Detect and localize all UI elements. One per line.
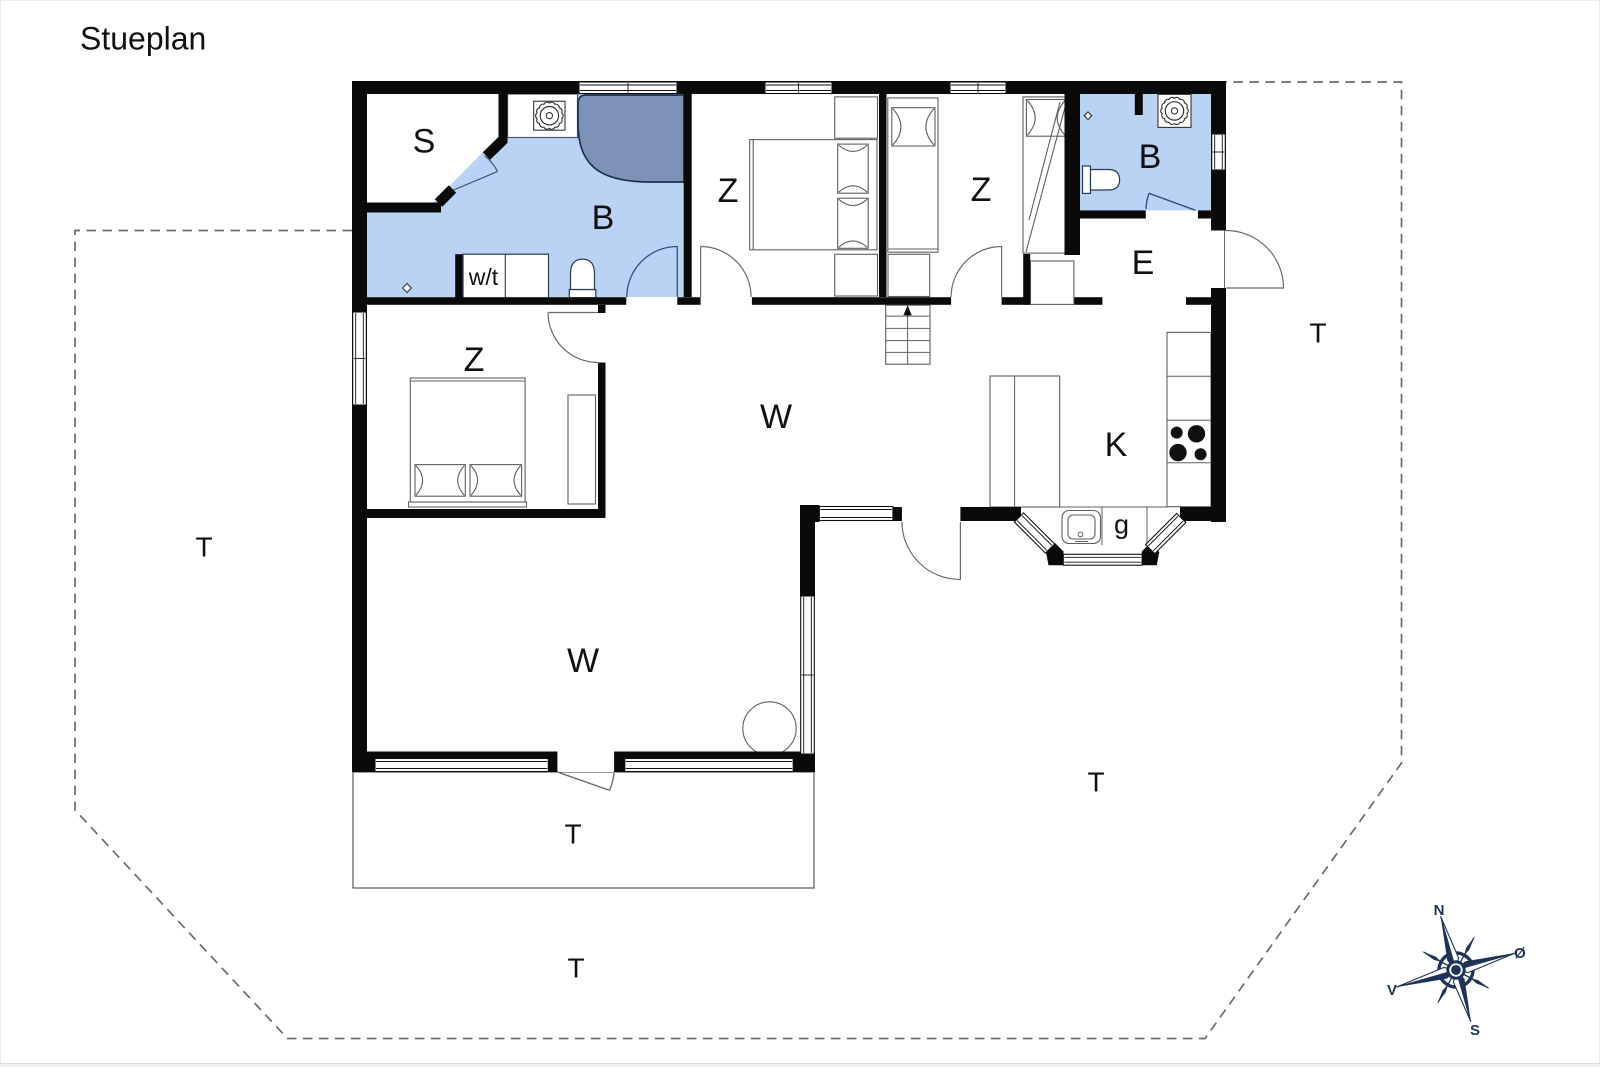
svg-text:V: V: [1387, 982, 1397, 999]
svg-text:W: W: [567, 642, 599, 680]
svg-text:E: E: [1132, 244, 1155, 282]
svg-text:S: S: [413, 123, 436, 161]
svg-text:N: N: [1434, 902, 1445, 919]
svg-text:T: T: [1087, 767, 1104, 798]
svg-text:Z: Z: [718, 172, 739, 210]
svg-text:T: T: [567, 953, 584, 984]
svg-text:Z: Z: [464, 341, 485, 379]
svg-text:Stueplan: Stueplan: [80, 21, 206, 57]
svg-text:W: W: [760, 398, 792, 436]
svg-text:T: T: [1309, 318, 1326, 349]
svg-text:g: g: [1114, 510, 1129, 540]
svg-text:T: T: [564, 819, 581, 850]
svg-text:Z: Z: [971, 171, 992, 209]
svg-text:K: K: [1105, 426, 1128, 464]
svg-text:B: B: [1139, 138, 1162, 176]
svg-text:T: T: [195, 532, 212, 563]
svg-text:Ø: Ø: [1514, 945, 1526, 962]
svg-text:w/t: w/t: [468, 264, 499, 290]
svg-text:B: B: [592, 199, 615, 237]
svg-text:S: S: [1470, 1022, 1480, 1039]
